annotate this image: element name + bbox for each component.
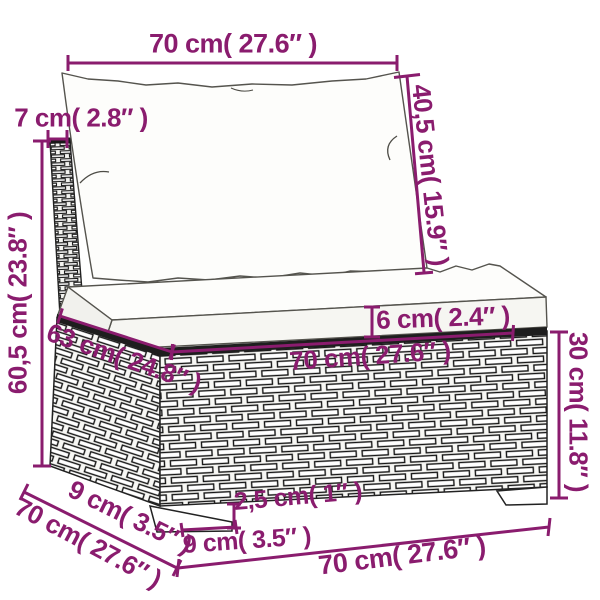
dim-label-backrest-height: 60,5 cm( 23.8″ ) bbox=[3, 212, 34, 394]
dimline-backrest-height bbox=[33, 141, 51, 466]
product-dimension-diagram: 70 cm( 27.6″ ) 7 cm( 2.8″ ) 40,5 cm( 15.… bbox=[0, 0, 600, 600]
dim-label-base-height: 30 cm( 11.8″ ) bbox=[563, 332, 594, 492]
dim-label-backrest-thickness: 7 cm( 2.8″ ) bbox=[14, 103, 148, 134]
dim-label-back-cushion-width: 70 cm( 27.6″ ) bbox=[149, 29, 317, 60]
right-foot bbox=[497, 487, 547, 505]
dim-label-cushion-thickness: 6 cm( 2.4″ ) bbox=[376, 300, 511, 336]
